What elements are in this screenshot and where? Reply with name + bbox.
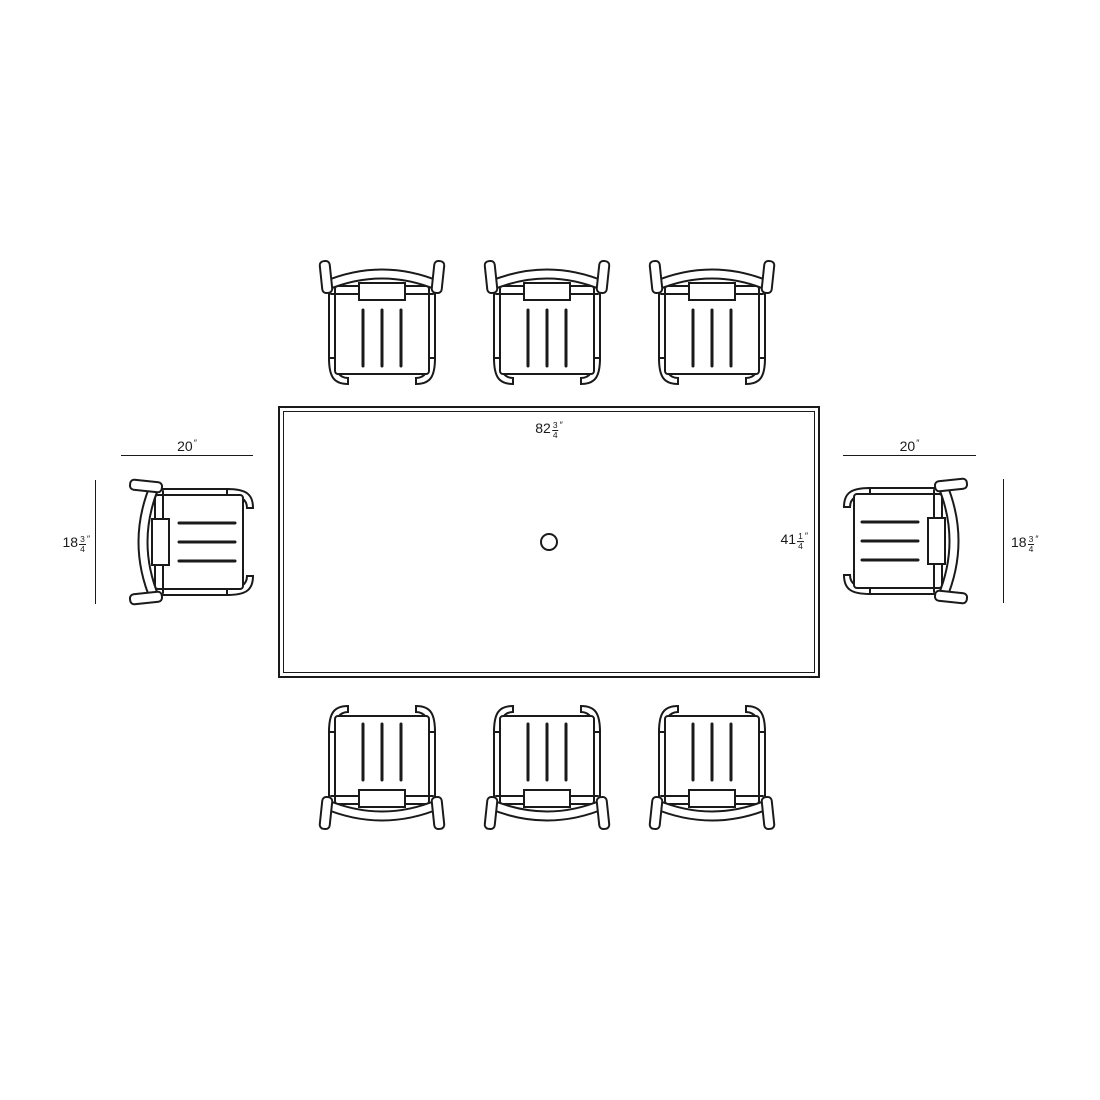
table-width-label: 4114″	[781, 531, 809, 551]
chair-west	[117, 478, 257, 606]
chair-depth-label-left: 1834″	[40, 534, 90, 554]
dim-line-chair-depth-right	[1003, 479, 1004, 603]
chair-south-3	[648, 702, 776, 842]
diagram-canvas: 8234″ 4114″ 20″ 20″	[0, 0, 1100, 1100]
chair-south-1	[318, 702, 446, 842]
chair-width-label-left: 20″	[121, 438, 253, 454]
table-top: 8234″ 4114″	[278, 406, 820, 678]
table-length-whole: 82	[535, 420, 551, 436]
table-width-unit: ″	[805, 532, 808, 541]
table-length-unit: ″	[560, 421, 563, 430]
dim-line-chair-depth-left	[95, 480, 96, 604]
dim-line-chair-width-right	[843, 455, 976, 456]
chair-north-3	[648, 248, 776, 388]
chair-north-1	[318, 248, 446, 388]
chair-north-2	[483, 248, 611, 388]
chair-width-label-right: 20″	[843, 438, 976, 454]
table-length-label: 8234″	[535, 420, 563, 440]
chair-depth-label-right: 1834″	[1011, 534, 1061, 554]
dim-line-chair-width-left	[121, 455, 253, 456]
chair-east	[840, 477, 980, 605]
umbrella-hole-icon	[540, 533, 558, 551]
table-width-whole: 41	[781, 531, 797, 547]
table-width-fraction: 14	[797, 531, 804, 551]
chair-south-2	[483, 702, 611, 842]
table-length-fraction: 34	[552, 420, 559, 440]
